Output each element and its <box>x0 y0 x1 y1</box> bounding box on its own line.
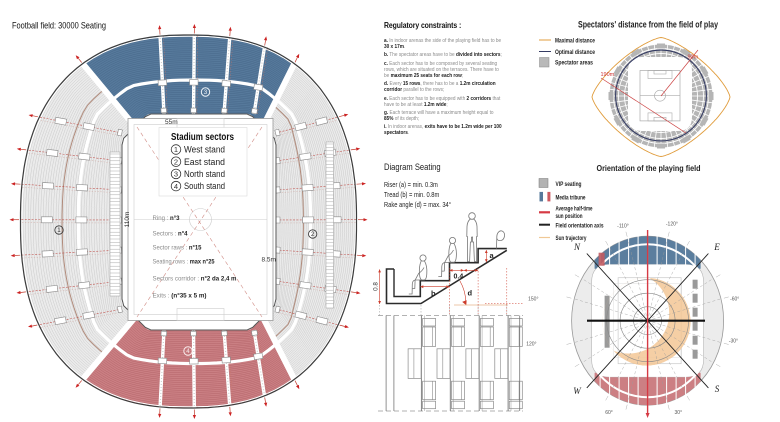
svg-text:VIP seating: VIP seating <box>556 181 582 188</box>
svg-text:4: 4 <box>186 348 190 355</box>
svg-text:90m: 90m <box>688 55 699 61</box>
svg-text:d: d <box>468 289 473 298</box>
svg-text:2: 2 <box>311 231 315 238</box>
svg-text:W: W <box>573 386 582 396</box>
svg-text:North stand: North stand <box>184 169 225 179</box>
svg-text:Average half-time: Average half-time <box>556 206 593 213</box>
svg-text:E: E <box>713 242 720 252</box>
svg-text:2: 2 <box>174 157 178 166</box>
svg-text:Exits : (n°35 x 5 m): Exits : (n°35 x 5 m) <box>153 291 207 299</box>
svg-text:8.5m: 8.5m <box>262 257 276 264</box>
svg-text:N: N <box>573 242 581 252</box>
svg-text:Optimal distance: Optimal distance <box>555 49 595 56</box>
svg-text:Sectors corridor : n°2 da 2,4: Sectors corridor : n°2 da 2,4 m <box>153 274 237 282</box>
svg-text:b: b <box>431 289 436 298</box>
svg-text:Sector raws : n°15: Sector raws : n°15 <box>153 243 202 251</box>
svg-text:30°: 30° <box>675 410 683 416</box>
svg-text:Orientation of the playing fie: Orientation of the playing field <box>597 163 701 173</box>
svg-text:Spectators' distance from the: Spectators' distance from the field of p… <box>578 19 719 30</box>
svg-text:Stadium sectors: Stadium sectors <box>171 132 234 143</box>
svg-text:S: S <box>715 384 720 394</box>
svg-text:3: 3 <box>204 89 208 96</box>
svg-text:1: 1 <box>174 145 178 154</box>
svg-text:190m: 190m <box>601 72 615 78</box>
svg-text:0.8: 0.8 <box>373 282 380 291</box>
svg-text:-60°: -60° <box>730 297 739 303</box>
svg-text:Media tribune: Media tribune <box>556 195 586 202</box>
svg-text:West stand: West stand <box>184 145 225 155</box>
svg-text:120°: 120° <box>526 341 536 347</box>
svg-text:Football field: 30000 Seating: Football field: 30000 Seating <box>12 21 106 31</box>
svg-text:60°: 60° <box>605 410 613 416</box>
svg-text:sun position: sun position <box>556 213 583 220</box>
svg-text:Sectors : n°4: Sectors : n°4 <box>153 229 188 237</box>
svg-text:Seating rows : max n°25: Seating rows : max n°25 <box>153 257 215 265</box>
svg-text:Maximal distance: Maximal distance <box>555 38 595 45</box>
svg-text:4: 4 <box>174 182 178 191</box>
svg-text:110m: 110m <box>124 212 131 228</box>
svg-text:1: 1 <box>57 227 61 234</box>
svg-text:Ring : n°3: Ring : n°3 <box>153 214 180 222</box>
svg-text:55m: 55m <box>165 119 178 126</box>
svg-text:0.4: 0.4 <box>454 274 464 281</box>
svg-text:-110°: -110° <box>617 224 629 230</box>
svg-text:3: 3 <box>174 170 178 179</box>
svg-text:South stand: South stand <box>184 181 225 191</box>
svg-text:Field orientation axis: Field orientation axis <box>556 222 604 229</box>
svg-text:Spectator areas: Spectator areas <box>555 60 593 67</box>
svg-text:-120°: -120° <box>666 222 678 228</box>
svg-text:East stand: East stand <box>184 157 225 167</box>
svg-text:150°: 150° <box>528 296 538 302</box>
svg-text:Sun trajectory: Sun trajectory <box>556 235 587 242</box>
svg-text:-30°: -30° <box>729 339 738 345</box>
